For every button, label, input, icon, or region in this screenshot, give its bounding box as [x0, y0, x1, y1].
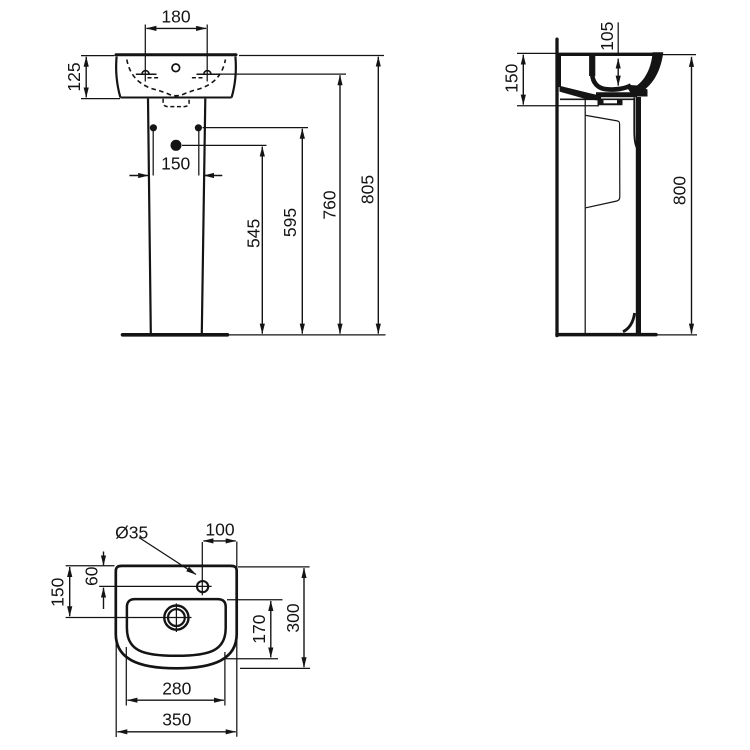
svg-text:150: 150: [47, 577, 67, 606]
svg-text:545: 545: [243, 219, 263, 248]
svg-text:105: 105: [597, 22, 617, 51]
svg-text:Ø35: Ø35: [115, 523, 148, 543]
svg-text:800: 800: [669, 176, 689, 205]
svg-text:595: 595: [280, 208, 300, 237]
svg-text:170: 170: [249, 614, 269, 643]
svg-text:125: 125: [64, 62, 84, 91]
svg-text:60: 60: [81, 566, 101, 586]
svg-text:805: 805: [358, 175, 378, 204]
svg-text:300: 300: [283, 603, 303, 632]
svg-text:150: 150: [502, 63, 522, 92]
svg-text:350: 350: [162, 709, 191, 729]
svg-text:100: 100: [205, 520, 234, 540]
svg-text:280: 280: [162, 678, 191, 698]
svg-text:180: 180: [161, 6, 190, 26]
svg-text:150: 150: [161, 154, 190, 174]
svg-text:760: 760: [320, 190, 340, 219]
